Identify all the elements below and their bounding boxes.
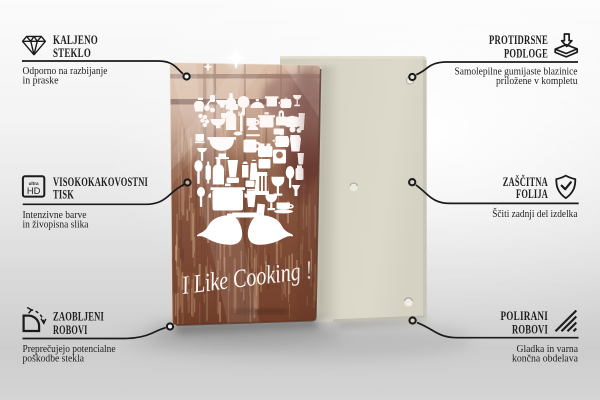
- svg-text:ROBOVI: ROBOVI: [53, 323, 88, 337]
- svg-text:in praske: in praske: [23, 76, 59, 87]
- svg-text:PODLOGE: PODLOGE: [504, 46, 548, 60]
- svg-text:HD: HD: [27, 185, 41, 196]
- svg-text:TISK: TISK: [53, 187, 74, 201]
- svg-text:Ščiti zadnji del izdelka: Ščiti zadnji del izdelka: [492, 208, 578, 220]
- svg-text:ROBOVI: ROBOVI: [512, 323, 548, 337]
- svg-text:poškodbe stekla: poškodbe stekla: [23, 354, 85, 365]
- svg-text:končna obdelava: končna obdelava: [512, 354, 578, 365]
- svg-text:FOLIJA: FOLIJA: [516, 187, 548, 201]
- svg-text:priložene v kompletu: priložene v kompletu: [496, 76, 578, 87]
- svg-text:POLIRANI: POLIRANI: [501, 309, 549, 323]
- svg-text:PROTIDRSNE: PROTIDRSNE: [489, 33, 548, 47]
- svg-text:in živopisna slika: in živopisna slika: [23, 220, 89, 231]
- svg-text:ZAOBLJENI: ZAOBLJENI: [53, 310, 104, 324]
- svg-text:STEKLO: STEKLO: [53, 46, 91, 60]
